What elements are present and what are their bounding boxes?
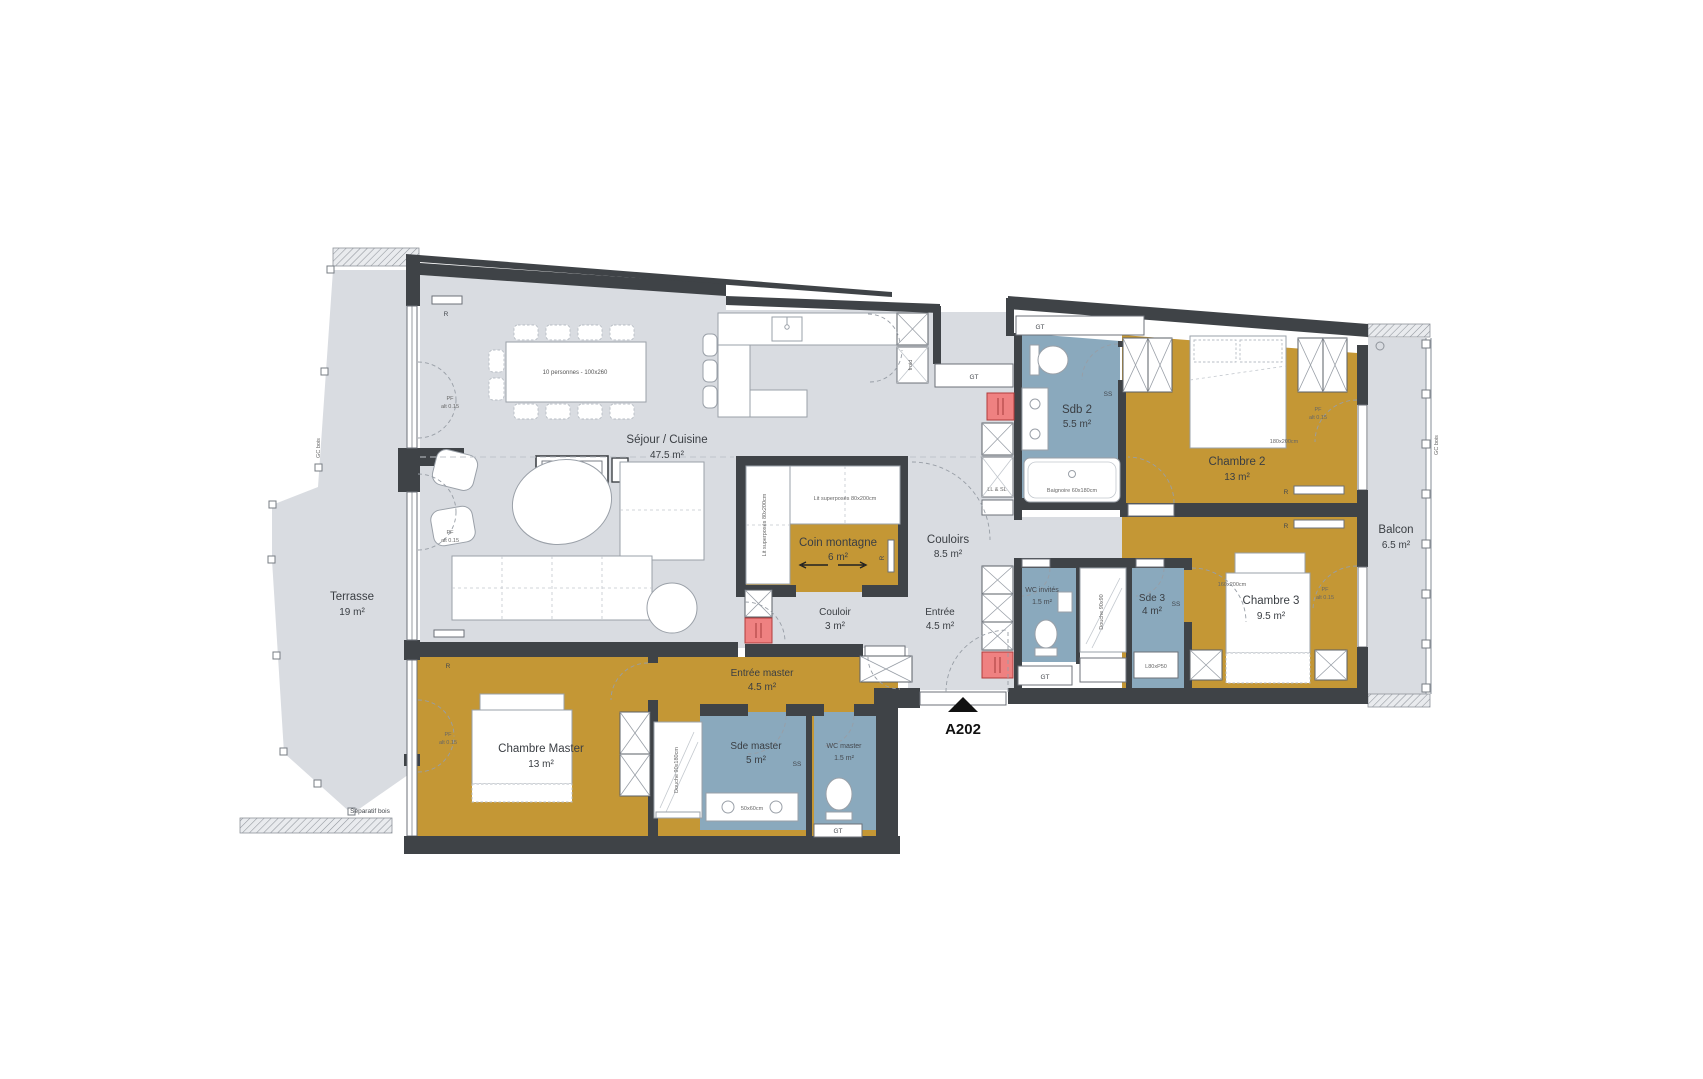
svg-text:R: R [444, 311, 449, 318]
ta-box [982, 500, 1013, 515]
svg-text:GT: GT [1035, 324, 1044, 331]
closet-x-icon [1123, 338, 1148, 392]
sejour-area: 47.5 m² [650, 450, 685, 461]
pf-alt-tag: alt 0.15 [441, 404, 459, 410]
sdb2-vanity [1022, 388, 1048, 450]
pf-tag: PF [446, 396, 454, 402]
couloir-label: Couloir [819, 607, 851, 618]
chambre2-label: Chambre 2 [1209, 456, 1266, 468]
pf-tag: PF [446, 530, 454, 536]
gt-duct-box: GT [1018, 666, 1072, 685]
sdb2-area: 5.5 m² [1063, 419, 1092, 430]
fridge-cabinet: froid [897, 347, 928, 383]
wc-master-label: WC master [827, 743, 863, 750]
coin-montagne-label: Coin montagne [799, 537, 877, 549]
separatif-label: Séparatif bois [350, 808, 390, 815]
couloir-area: 3 m² [825, 621, 846, 632]
entree-label: Entrée [925, 607, 955, 618]
master-shower: Douche 90x180cm [654, 722, 702, 818]
separatif-strip [240, 818, 392, 833]
chambre-master-label: Chambre Master [498, 743, 584, 755]
closet-x-icon [982, 566, 1013, 594]
entree-master-label: Entrée master [731, 668, 794, 679]
floor-plan: 10 personnes - 100x260 Cheminée vapeur L… [0, 0, 1703, 1079]
wc-invites-label: WC invités [1025, 587, 1059, 594]
technical-shaft [987, 393, 1014, 420]
svg-text:GT: GT [969, 374, 978, 381]
gt-duct-box: GT [1016, 316, 1144, 335]
svg-text:GT: GT [1040, 674, 1049, 681]
ss-tag: SS [793, 761, 802, 768]
wc-invites-area: 1.5 m² [1032, 599, 1053, 606]
sde3-label: Sde 3 [1139, 593, 1166, 604]
master-vanity-label: 50x60cm [741, 806, 764, 812]
closet-x-icon [745, 590, 772, 617]
bathtub: Baignoire 60x180cm [1024, 458, 1120, 502]
master-wardrobe-x-icon [620, 754, 650, 796]
terrasse-label: Terrasse [330, 591, 374, 603]
chambre2-area: 13 m² [1224, 472, 1250, 483]
dining-table-label: 10 personnes - 100x260 [543, 370, 608, 376]
terrasse-floor [272, 270, 415, 814]
master-vanity: 50x60cm [706, 793, 798, 821]
closet-x-icon [1323, 338, 1347, 392]
master-toilet-icon [826, 778, 852, 820]
service-box [1080, 658, 1126, 682]
wc-master-area: 1.5 m² [834, 755, 855, 762]
gt-duct-box: GT [935, 364, 1013, 387]
bed-chambre2: 180x200cm [1190, 336, 1299, 448]
nightstand-x-icon [1190, 650, 1222, 680]
couloirs-label: Couloirs [927, 534, 969, 546]
svg-text:R: R [1284, 489, 1289, 496]
floor-plan-page: 10 personnes - 100x260 Cheminée vapeur L… [0, 0, 1703, 1079]
pf-alt-tag: alt 0.15 [1316, 595, 1334, 601]
balcon-label: Balcon [1378, 524, 1413, 536]
pf-alt-tag: alt 0.15 [1309, 415, 1327, 421]
gc-right-label: GC bois [1434, 435, 1440, 455]
sde3-cabinet-label: L80xP50 [1145, 664, 1167, 670]
closet-x-icon [1148, 338, 1172, 392]
master-wardrobe-x-icon [620, 712, 650, 754]
ss-tag: SS [1172, 601, 1181, 608]
sejour-label: Séjour / Cuisine [626, 434, 707, 446]
pf-tag: PF [444, 732, 452, 738]
nightstand-x-icon [1315, 650, 1347, 680]
closet-x-icon [982, 594, 1013, 622]
sdb2-label: Sdb 2 [1062, 404, 1092, 416]
sde-master-area: 5 m² [746, 755, 767, 766]
wc-master-gt-box: GT [814, 824, 862, 837]
closet-x-icon [982, 423, 1013, 455]
sde3-shower-label: Douche 90x90 [1099, 594, 1105, 629]
bathtub-label: Baignoire 60x180cm [1047, 488, 1098, 494]
unit-label: A202 [945, 721, 981, 738]
couloirs-area: 8.5 m² [934, 549, 963, 560]
closet-x-icon [1298, 338, 1323, 392]
pf-tag: PF [1321, 587, 1329, 593]
chambre3-label: Chambre 3 [1243, 595, 1300, 607]
coin-montagne-area: 6 m² [828, 552, 849, 563]
svg-text:GT: GT [833, 828, 842, 835]
bunk-side-label: Lit superposés 80x200cm [762, 493, 768, 556]
chambre-master-area: 13 m² [528, 759, 554, 770]
closet-x-icon [897, 313, 928, 345]
gc-left-label: GC bois [316, 438, 322, 458]
bed2-size-label: 180x200cm [1270, 439, 1299, 445]
entree-master-area: 4.5 m² [748, 682, 777, 693]
svg-text:R: R [1284, 523, 1289, 530]
ss-tag: SS [1104, 391, 1113, 398]
bed3-size-label: 160x200cm [1218, 582, 1247, 588]
sofa-group [429, 447, 704, 633]
sdb2-toilet-icon [1030, 345, 1068, 375]
sde-master-label: Sde master [730, 741, 782, 752]
balcon-area: 6.5 m² [1382, 540, 1411, 551]
pf-alt-tag: alt 0.15 [439, 740, 457, 746]
svg-text:R: R [446, 663, 451, 670]
sde3-shower: Douche 90x90 [1080, 568, 1126, 652]
chambre3-area: 9.5 m² [1257, 611, 1286, 622]
bunk-top-label: Lit superposés 80x200cm [814, 496, 877, 502]
entree-area: 4.5 m² [926, 621, 955, 632]
sde3-area: 4 m² [1142, 606, 1163, 617]
washer-dryer-cabinet: LL & SL [982, 457, 1013, 497]
pf-alt-tag: alt 0.15 [441, 538, 459, 544]
terrasse-area: 19 m² [339, 607, 365, 618]
sde3-cabinet: L80xP50 [1134, 652, 1178, 678]
technical-shaft [745, 618, 772, 643]
pf-tag: PF [1314, 407, 1322, 413]
balcon-floor [1368, 338, 1426, 694]
svg-text:R: R [879, 555, 886, 560]
svg-text:froid: froid [908, 360, 914, 371]
master-shower-label: Douche 90x180cm [674, 747, 680, 793]
svg-text:LL & SL: LL & SL [987, 487, 1006, 493]
